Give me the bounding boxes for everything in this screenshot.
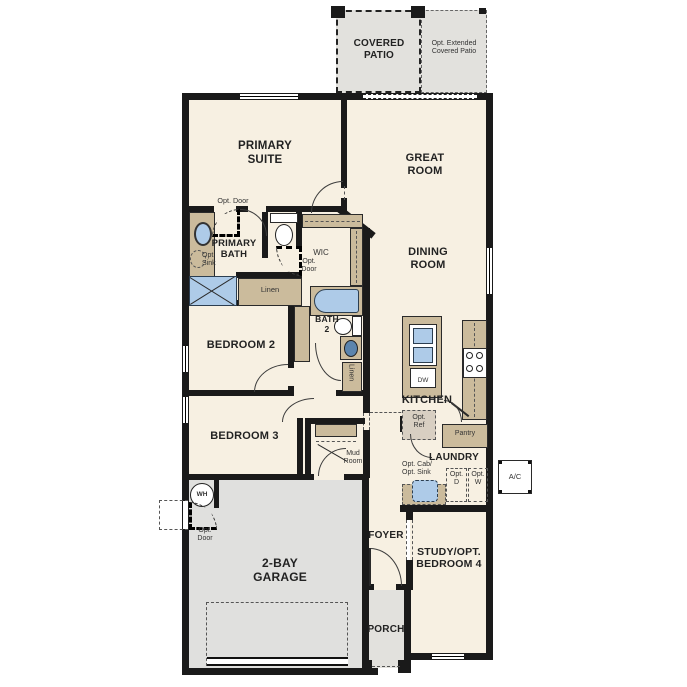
corner-tick bbox=[528, 461, 531, 464]
wall bbox=[486, 512, 493, 660]
bench-dash bbox=[316, 441, 356, 442]
garage-door bbox=[207, 657, 348, 666]
wall bbox=[182, 668, 378, 675]
shelf-dash bbox=[356, 231, 357, 283]
label-opt-ref: Opt. Ref bbox=[405, 414, 433, 431]
corner-tick bbox=[499, 490, 502, 493]
burner bbox=[466, 352, 473, 359]
room-label-primary-suite: PRIMARY SUITE bbox=[195, 140, 335, 167]
label-opt-door-garage: Opt. Door bbox=[190, 527, 220, 544]
wall bbox=[344, 474, 369, 480]
window bbox=[183, 397, 188, 423]
room-label-opt-extended-patio: Opt. Extended Covered Patio bbox=[420, 40, 488, 57]
room-label-mud-room: Mud Room bbox=[338, 450, 368, 467]
wall bbox=[362, 478, 369, 668]
wall bbox=[214, 480, 219, 508]
window bbox=[240, 94, 298, 99]
shower-icon bbox=[189, 276, 237, 306]
label-opt-d: Opt. D bbox=[446, 471, 467, 488]
room-label-covered-patio: COVERED PATIO bbox=[338, 38, 420, 62]
label-ac: A/C bbox=[498, 473, 532, 482]
wall bbox=[400, 505, 493, 512]
label-pantry: Pantry bbox=[442, 430, 488, 438]
front-door-leaf bbox=[369, 548, 371, 586]
window bbox=[432, 654, 464, 659]
porch-corner bbox=[362, 660, 372, 673]
toilet-icon bbox=[275, 224, 293, 246]
room-label-wic: WIC bbox=[306, 248, 336, 257]
patio-corner-mark bbox=[479, 8, 486, 14]
room-label-kitchen: KITCHEN bbox=[398, 394, 456, 407]
room-label-foyer: FOYER bbox=[364, 530, 408, 542]
label-linen-2: Linen bbox=[346, 364, 354, 381]
room-label-garage: 2-BAY GARAGE bbox=[226, 556, 334, 584]
sink-icon bbox=[413, 328, 433, 344]
toilet-icon bbox=[270, 213, 298, 223]
porch-edge-dashed bbox=[372, 666, 400, 667]
wall bbox=[182, 100, 189, 482]
corner-tick bbox=[499, 461, 502, 464]
cooktop-icon bbox=[463, 348, 487, 378]
label-opt-door-wic: Opt. Door bbox=[296, 258, 322, 275]
wall bbox=[341, 100, 347, 188]
wall bbox=[363, 228, 370, 308]
opt-sink-icon bbox=[412, 480, 438, 502]
sink-icon bbox=[344, 340, 358, 357]
window bbox=[487, 248, 492, 294]
room-label-bedroom-3: BEDROOM 3 bbox=[192, 430, 297, 443]
room-label-bath-2: BATH 2 bbox=[310, 314, 344, 334]
room-label-bedroom-2: BEDROOM 2 bbox=[186, 339, 296, 352]
burner bbox=[476, 365, 483, 372]
room-label-porch: PORCH bbox=[364, 624, 408, 636]
dishwasher: DW bbox=[410, 368, 436, 388]
corner-tick bbox=[528, 490, 531, 493]
patio-post bbox=[411, 6, 425, 18]
shower-x bbox=[189, 277, 237, 306]
patio-post bbox=[331, 6, 345, 18]
wall bbox=[486, 100, 493, 512]
shelf-dash bbox=[305, 221, 360, 222]
water-heater-label: WH bbox=[197, 491, 208, 499]
floor-plan: DW WH COVERED PATIO Opt. bbox=[0, 0, 687, 687]
wall bbox=[363, 308, 370, 413]
hall-closet bbox=[294, 306, 310, 362]
shower-x bbox=[190, 276, 237, 305]
room-label-dining-room: DINING ROOM bbox=[378, 246, 478, 272]
wic-shelf bbox=[350, 228, 363, 286]
label-opt-door-suite: Opt. Door bbox=[208, 197, 258, 205]
door-opening-dashed bbox=[344, 186, 345, 200]
label-linen: Linen bbox=[238, 286, 302, 295]
toilet-icon bbox=[352, 316, 362, 336]
wall bbox=[406, 506, 413, 520]
opt-door-gap bbox=[183, 501, 188, 529]
dishwasher-label: DW bbox=[418, 377, 429, 384]
wall bbox=[297, 418, 303, 478]
study-floor bbox=[410, 510, 489, 655]
label-opt-cab-sink: Opt. Cab/ Opt. Sink bbox=[402, 461, 448, 478]
burner bbox=[476, 352, 483, 359]
sliding-patio-door bbox=[363, 94, 477, 99]
bathtub-icon bbox=[314, 289, 359, 313]
burner bbox=[466, 365, 473, 372]
label-opt-w: Opt. W bbox=[468, 471, 488, 488]
wall bbox=[186, 474, 314, 480]
label-opt-sink: Opt. Sink bbox=[202, 252, 226, 269]
wic-shelf bbox=[302, 214, 363, 228]
room-label-study: STUDY/OPT. BEDROOM 4 bbox=[408, 546, 490, 571]
wall bbox=[305, 418, 311, 478]
wall bbox=[404, 590, 411, 656]
sink-icon bbox=[413, 347, 433, 363]
hall-dashed bbox=[370, 412, 406, 413]
mudroom-bench bbox=[315, 424, 357, 437]
room-label-great-room: GREAT ROOM bbox=[375, 152, 475, 178]
